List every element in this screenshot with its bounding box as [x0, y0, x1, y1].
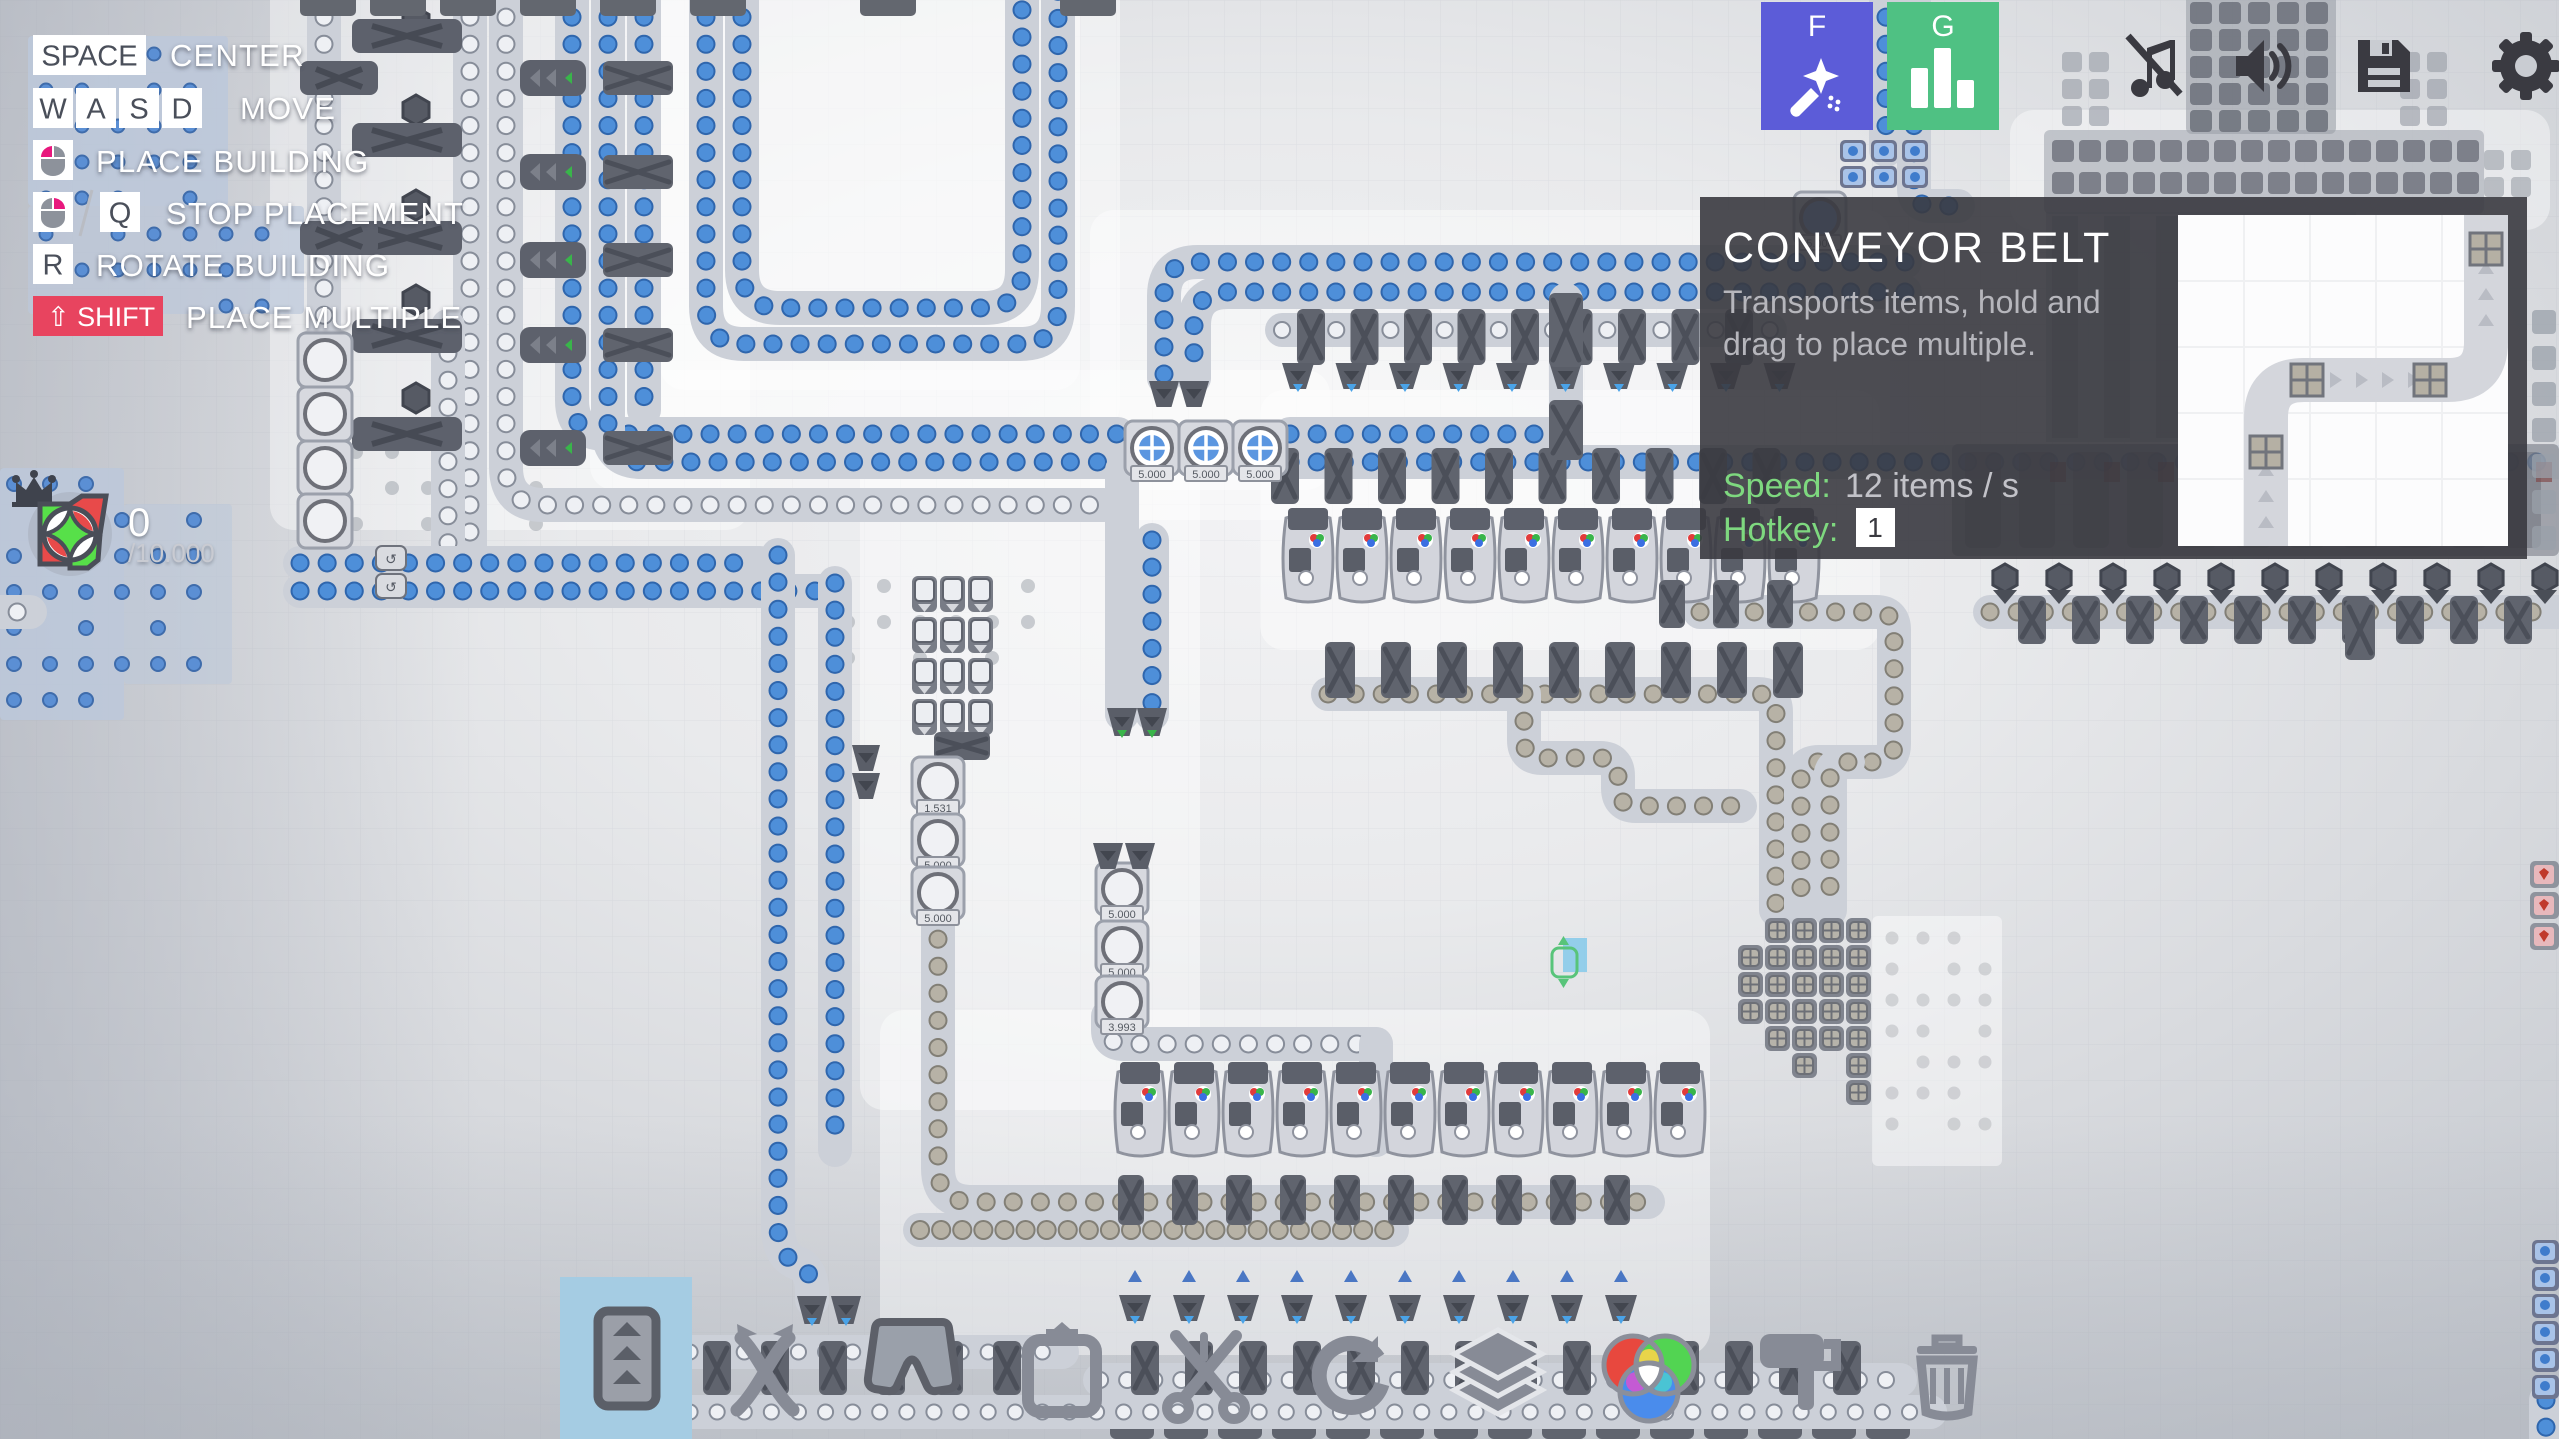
svg-text:5.000: 5.000: [1246, 469, 1274, 481]
svg-text:5.000: 5.000: [1192, 469, 1220, 481]
svg-text:STOP PLACEMENT: STOP PLACEMENT: [166, 196, 464, 231]
svg-text:A: A: [86, 93, 106, 125]
svg-text:D: D: [172, 93, 193, 125]
svg-text:5.000: 5.000: [1108, 909, 1136, 921]
svg-text:3.993: 3.993: [1108, 1022, 1136, 1034]
svg-text:1: 1: [1867, 512, 1883, 543]
svg-text:↺: ↺: [385, 551, 397, 567]
svg-text:ROTATE BUILDING: ROTATE BUILDING: [96, 248, 390, 283]
svg-text:W: W: [39, 93, 67, 125]
svg-text:CONVEYOR BELT: CONVEYOR BELT: [1723, 224, 2111, 272]
svg-text:12 items / s: 12 items / s: [1845, 467, 2019, 505]
svg-text:drag to place multiple.: drag to place multiple.: [1723, 326, 2036, 362]
svg-text:5.000: 5.000: [1138, 469, 1166, 481]
svg-text:5.000: 5.000: [924, 913, 952, 925]
svg-text:SPACE: SPACE: [41, 40, 137, 72]
svg-text:MOVE: MOVE: [240, 91, 336, 126]
svg-text:G: G: [1931, 10, 1954, 43]
svg-text:CENTER: CENTER: [170, 38, 305, 73]
svg-text:Transports items, hold and: Transports items, hold and: [1723, 284, 2101, 320]
svg-text:PLACE BUILDING: PLACE BUILDING: [96, 144, 370, 179]
svg-text:⇧ SHIFT: ⇧ SHIFT: [47, 302, 155, 332]
svg-text:/10.000: /10.000: [128, 538, 215, 568]
svg-text:S: S: [129, 93, 148, 125]
svg-text:↺: ↺: [385, 579, 397, 595]
svg-text:PLACE MULTIPLE: PLACE MULTIPLE: [186, 300, 462, 335]
svg-text:Q: Q: [109, 197, 132, 229]
svg-text:Hotkey:: Hotkey:: [1723, 511, 1838, 549]
svg-text:R: R: [43, 249, 64, 281]
svg-text:F: F: [1808, 10, 1826, 43]
svg-text:Speed:: Speed:: [1723, 467, 1831, 505]
